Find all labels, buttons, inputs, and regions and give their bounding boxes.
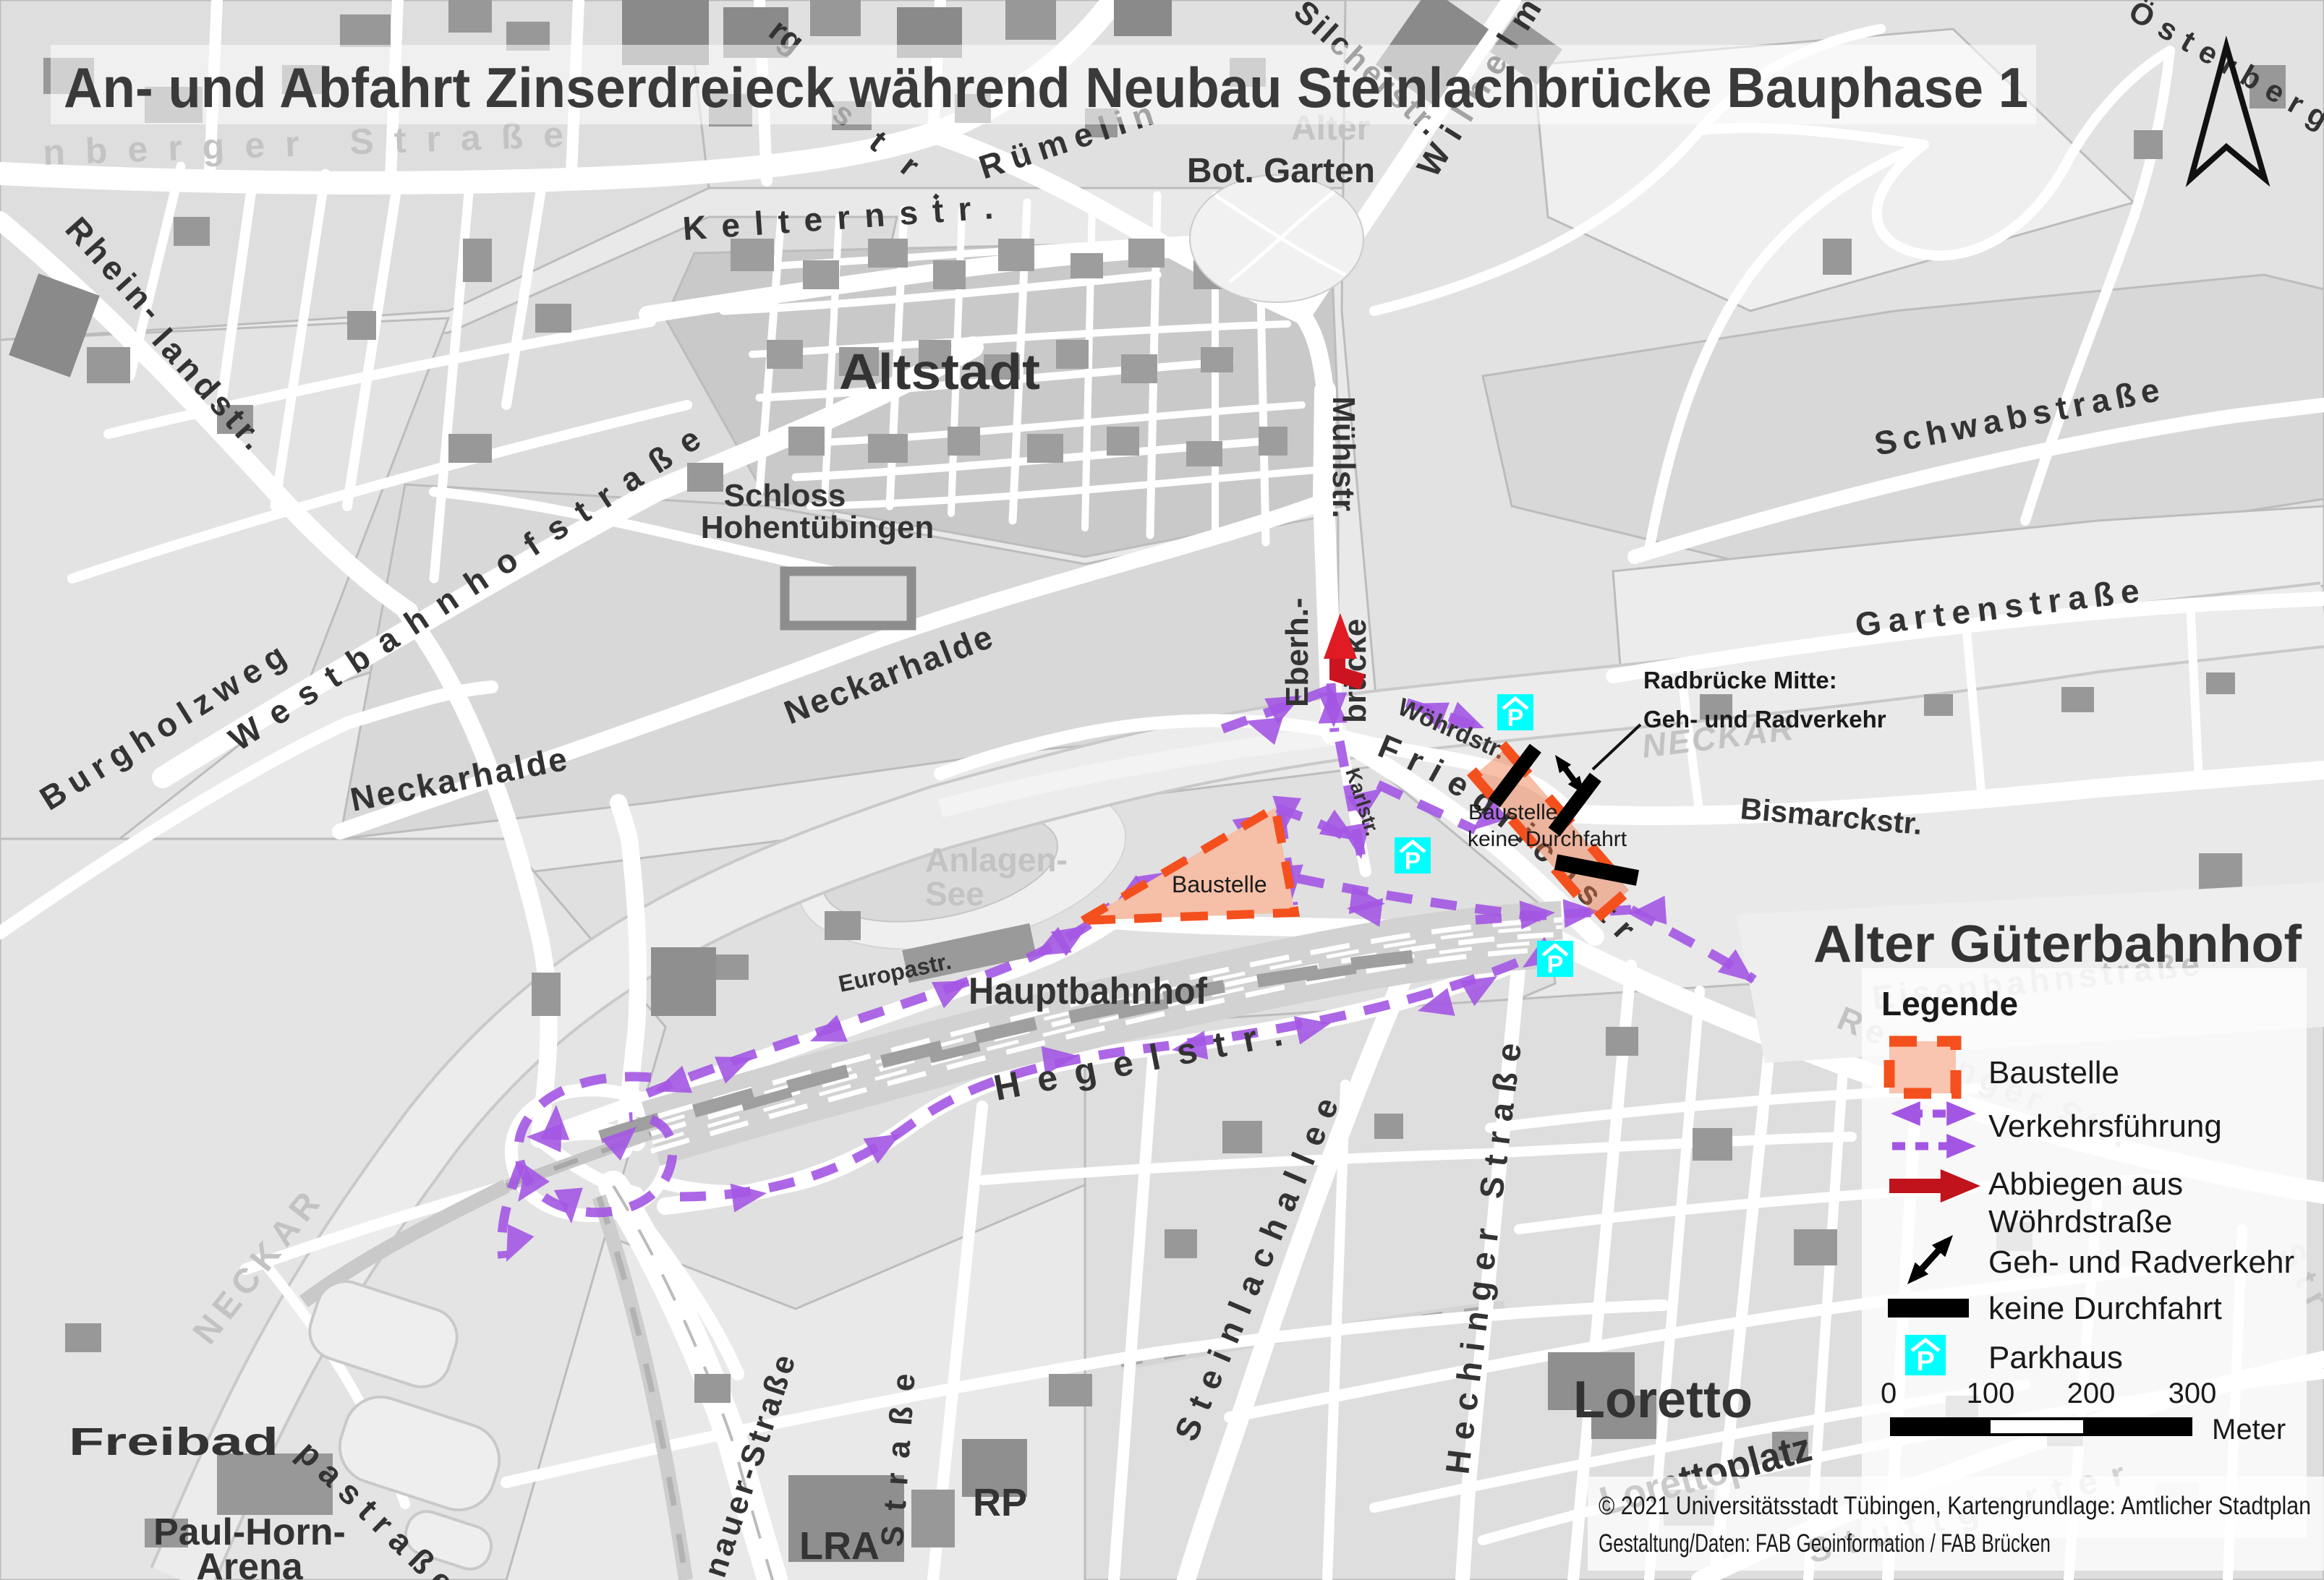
svg-text:keine Durchfahrt: keine Durchfahrt [1468, 827, 1627, 851]
svg-text:Abbiegen aus: Abbiegen aus [1988, 1166, 2183, 1202]
svg-text:See: See [925, 875, 984, 913]
svg-text:200: 200 [2067, 1378, 2116, 1409]
svg-text:Baustelle: Baustelle [1172, 871, 1267, 897]
svg-text:Wöhrdstraße: Wöhrdstraße [1988, 1204, 2172, 1239]
svg-text:P: P [1507, 704, 1524, 732]
svg-text:P: P [1916, 1346, 1934, 1377]
svg-text:Arena: Arena [196, 1546, 303, 1580]
svg-text:Bot. Garten: Bot. Garten [1187, 152, 1375, 190]
svg-text:Freibad: Freibad [69, 1420, 278, 1464]
svg-text:P: P [1547, 951, 1564, 978]
svg-text:Legende: Legende [1881, 985, 2018, 1022]
svg-text:Geh- und Radverkehr: Geh- und Radverkehr [1643, 706, 1886, 733]
svg-text:P: P [1405, 847, 1421, 875]
svg-text:LRA: LRA [799, 1524, 880, 1568]
svg-text:RP: RP [973, 1481, 1027, 1524]
svg-text:Schloss: Schloss [724, 478, 846, 513]
svg-text:Geh- und Radverkehr: Geh- und Radverkehr [1988, 1244, 2294, 1280]
svg-text:Parkhaus: Parkhaus [1988, 1340, 2123, 1375]
svg-text:Baustelle: Baustelle [1988, 1055, 2119, 1090]
svg-text:Hauptbahnhof: Hauptbahnhof [969, 970, 1208, 1012]
svg-text:Loretto: Loretto [1573, 1371, 1753, 1429]
svg-text:keine Durchfahrt: keine Durchfahrt [1988, 1291, 2222, 1326]
svg-text:Altstadt: Altstadt [839, 343, 1040, 400]
svg-text:Alter Güterbahnhof: Alter Güterbahnhof [1813, 915, 2302, 973]
svg-text:0: 0 [1881, 1378, 1897, 1409]
svg-text:Eberh.-: Eberh.- [1280, 597, 1315, 707]
svg-text:Hohentübingen: Hohentübingen [701, 510, 935, 545]
svg-text:Anlagen-: Anlagen- [925, 841, 1068, 879]
svg-text:300: 300 [2168, 1378, 2217, 1409]
svg-text:Baustelle: Baustelle [1468, 800, 1557, 824]
svg-text:Verkehrsführung: Verkehrsführung [1988, 1109, 2222, 1144]
svg-text:Gestaltung/Daten: FAB Geoinfor: Gestaltung/Daten: FAB Geoinformation / F… [1599, 1529, 2051, 1558]
svg-text:Radbrücke Mitte:: Radbrücke Mitte: [1643, 667, 1837, 693]
svg-text:Meter: Meter [2212, 1414, 2286, 1446]
svg-text:© 2021 Universitätsstadt Tübin: © 2021 Universitätsstadt Tübingen, Karte… [1599, 1492, 2311, 1520]
svg-text:Mühlstr.: Mühlstr. [1326, 396, 1361, 518]
svg-text:100: 100 [1967, 1378, 2015, 1409]
svg-text:An- und Abfahrt Zinserdreieck: An- und Abfahrt Zinserdreieck während Ne… [64, 56, 2028, 119]
